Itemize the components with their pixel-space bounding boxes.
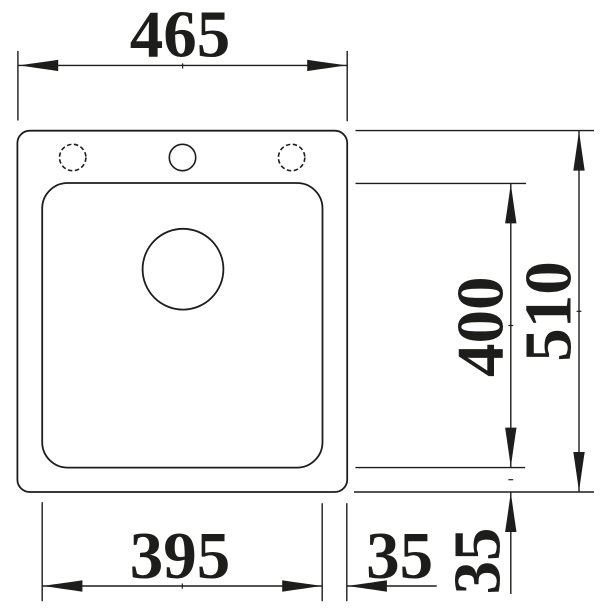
svg-text:35: 35 xyxy=(366,519,433,593)
svg-text:465: 465 xyxy=(130,0,231,72)
svg-text:510: 510 xyxy=(511,261,585,362)
svg-text:35: 35 xyxy=(441,528,515,595)
svg-text:395: 395 xyxy=(130,519,231,593)
svg-text:400: 400 xyxy=(443,277,517,378)
